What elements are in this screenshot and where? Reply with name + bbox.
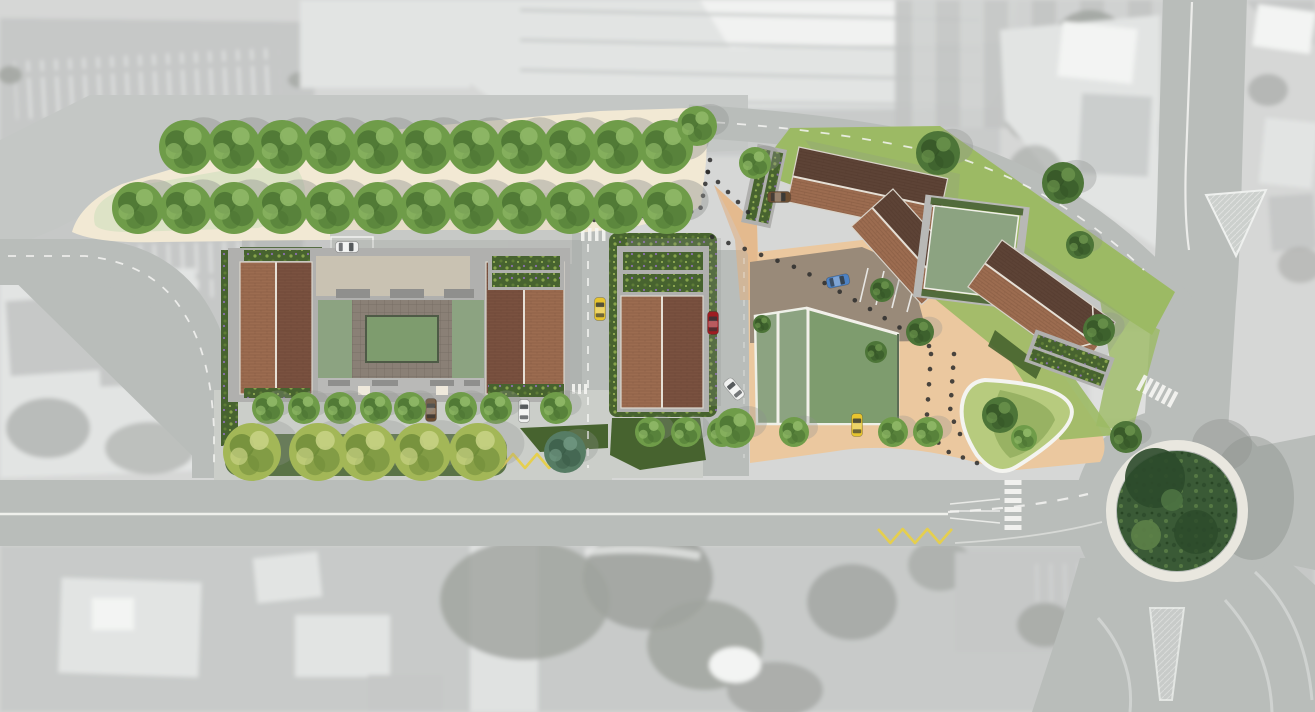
parked-white-van-plaza	[336, 242, 359, 253]
red-car-parking-lane	[708, 312, 719, 335]
island-shrub	[1131, 520, 1161, 550]
tree	[982, 397, 1018, 433]
tree	[753, 315, 771, 333]
middle-green-bay-1-texture	[623, 252, 703, 270]
green-roof-bay-north-west	[244, 250, 310, 261]
yellow-car-south-bay	[852, 414, 863, 437]
brown-car-north-drive	[768, 192, 791, 203]
yellow-car-internal-street	[595, 298, 606, 321]
site-plan-canvas	[0, 0, 1315, 712]
site-plan-stage	[0, 0, 1315, 712]
left-apartment-block	[228, 248, 570, 402]
tree	[865, 341, 887, 363]
roof-tabs-north	[336, 289, 474, 298]
courtyard-green-panel	[366, 316, 438, 362]
island-tree-small	[1174, 510, 1218, 554]
middle-apartment-block	[617, 246, 709, 412]
middle-block-roof	[621, 296, 703, 408]
green-roof-bays-north-east	[488, 252, 564, 290]
tree	[1011, 425, 1037, 451]
middle-green-bay-2-texture	[623, 274, 703, 292]
entrance-mark-2	[436, 386, 448, 395]
island-shrub-2	[1161, 489, 1183, 511]
west-wing-roof	[240, 262, 312, 394]
